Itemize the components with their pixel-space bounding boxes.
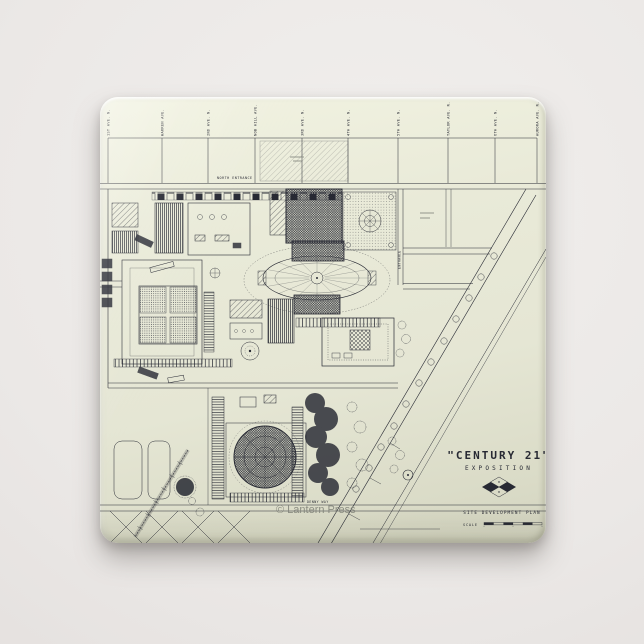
coliseum-dome-area	[212, 395, 306, 502]
map-title: "CENTURY 21"	[447, 449, 546, 462]
exposition-map: 1ST AVE. N. WARREN AVE. 2ND AVE. N. NOB …	[100, 97, 546, 543]
map-linework	[100, 138, 546, 543]
century21-diamond-logo	[482, 477, 516, 497]
street-label: 1ST AVE. N.	[106, 109, 110, 136]
north-entrance-label: NORTH ENTRANCE	[217, 176, 253, 180]
street-label: 3RD AVE. N.	[300, 109, 304, 136]
street-label: 5TH AVE. N.	[396, 109, 400, 136]
street-label: WARREN AVE.	[160, 109, 164, 136]
title-block-graphics	[482, 477, 542, 527]
street-labels: 1ST AVE. N. WARREN AVE. 2ND AVE. N. NOB …	[106, 102, 539, 137]
product-photo: 1ST AVE. N. WARREN AVE. 2ND AVE. N. NOB …	[0, 0, 644, 644]
square-pin-button: 1ST AVE. N. WARREN AVE. 2ND AVE. N. NOB …	[100, 97, 546, 543]
street-label: NOB HILL AVE.	[253, 104, 257, 136]
scale-bar	[484, 523, 542, 528]
entrance-label: ENTRANCE	[398, 250, 402, 269]
street-label: 6TH AVE. N.	[493, 109, 497, 136]
street-label: 4TH AVE. N.	[346, 109, 350, 136]
street-label: 2ND AVE. N.	[206, 109, 210, 136]
exhibition-hall-building	[270, 189, 342, 243]
formal-garden	[343, 192, 396, 250]
scale-label: SCALE	[463, 523, 478, 527]
stadium	[244, 241, 390, 314]
north-street-grid	[100, 138, 546, 189]
map-subtitle: EXPOSITION	[465, 465, 533, 472]
street-label: TAYLOR AVE. N.	[446, 102, 450, 137]
plan-label: SITE DEVELOPMENT PLAN	[463, 510, 540, 516]
street-label: AURORA AVE. N.	[535, 102, 539, 137]
watermark: © Lantern Press	[276, 504, 356, 516]
